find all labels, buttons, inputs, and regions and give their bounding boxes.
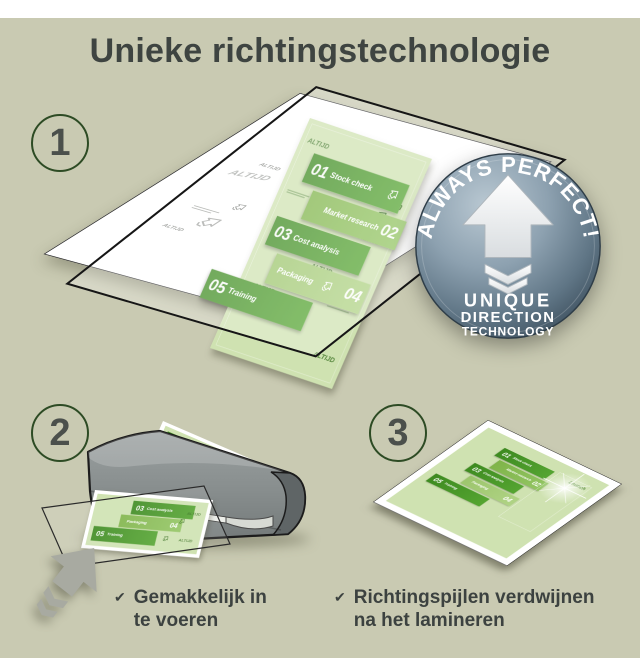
page-title: Unieke richtingstechnologie — [0, 32, 640, 71]
caption-line-2: te voeren — [134, 610, 218, 631]
badge-graphic: ALWAYS PERFECT! UNIQUE DIRECTION TECHNOL… — [412, 150, 604, 342]
caption-line-2: na het lamineren — [354, 610, 505, 631]
caption-arrows-disappear: ✔ Richtingspijlen verdwijnen na het lami… — [334, 586, 594, 632]
direction-arrow-icon — [160, 535, 170, 543]
tile-label: Training — [443, 482, 458, 490]
caption-line-1: Richtingspijlen verdwijnen — [354, 587, 595, 608]
infographic-canvas: Unieke richtingstechnologie 1 ALTIJD ALT… — [0, 18, 640, 658]
badge-line-unique: UNIQUE — [464, 289, 552, 310]
step-2-number: 2 — [49, 412, 70, 455]
direction-arrow-icon — [177, 517, 187, 525]
step-1-number: 1 — [49, 122, 70, 165]
step-3-number: 3 — [387, 412, 408, 455]
badge-line-technology: TECHNOLOGY — [462, 324, 554, 338]
altijd-watermark: ALTIJD — [178, 538, 193, 544]
pouch-watermark: ALTIJD — [257, 162, 282, 172]
caption-line-1: Gemakkelijk in — [134, 587, 267, 608]
tile-number: 04 — [501, 496, 514, 503]
checkmark-icon: ✔ — [334, 589, 346, 632]
feed-direction-arrow-icon — [14, 532, 118, 636]
caption-text: Richtingspijlen verdwijnen na het lamine… — [354, 586, 595, 632]
tile-label: Cost analysis — [146, 507, 173, 513]
caption-text: Gemakkelijk in te voeren — [134, 586, 267, 632]
step-1-badge: 1 — [31, 114, 89, 172]
tile-label: Packaging — [126, 519, 147, 525]
step-3-badge: 3 — [369, 404, 427, 462]
direction-arrow-icon — [225, 201, 251, 215]
checkmark-icon: ✔ — [114, 589, 126, 632]
pouch-watermark: ALTIJD — [161, 222, 186, 232]
always-perfect-badge: ALWAYS PERFECT! UNIQUE DIRECTION TECHNOL… — [412, 150, 604, 342]
tile-number: 03 — [135, 504, 144, 511]
tile-label: Packaging — [470, 481, 489, 491]
caption-easy-feed: ✔ Gemakkelijk in te voeren — [114, 586, 267, 632]
